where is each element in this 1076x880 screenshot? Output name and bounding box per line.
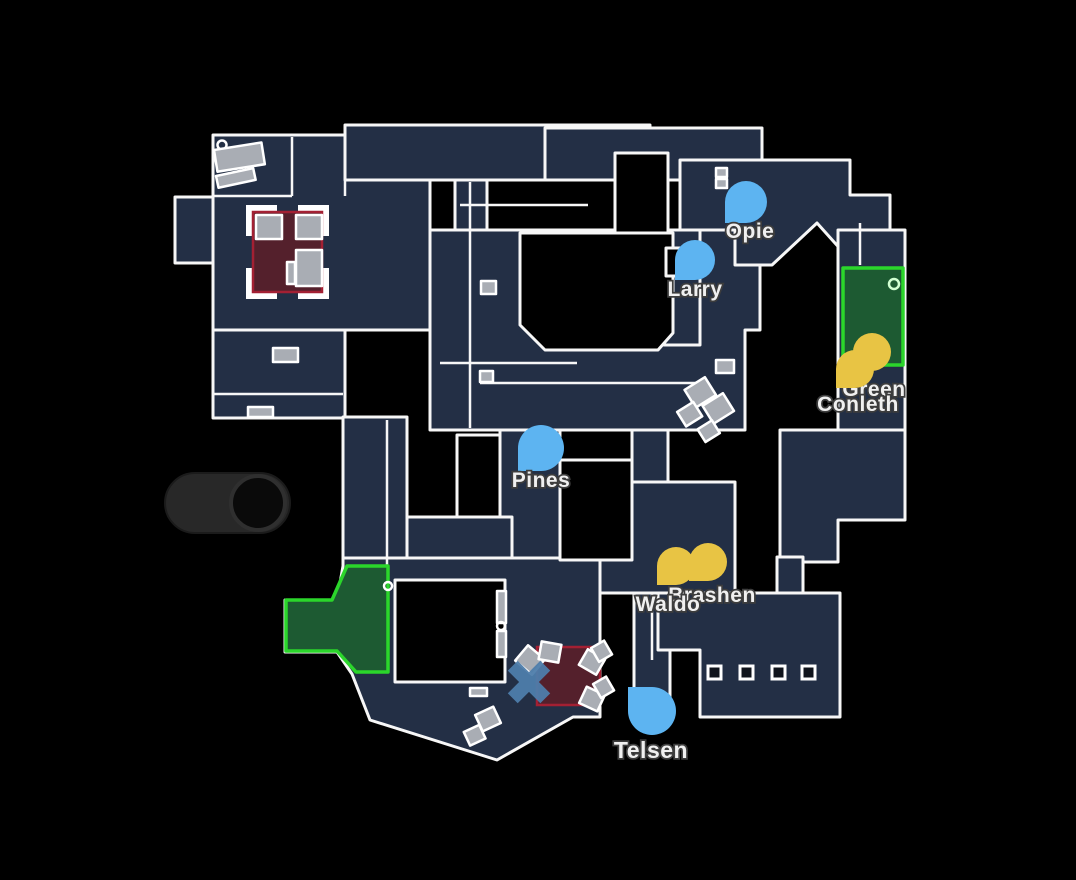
player-drop-icon [725, 181, 767, 223]
player-name-label: Larry [667, 278, 722, 301]
crate [470, 688, 487, 696]
minimap-svg: Green Conleth Brashen Waldo Opie Larry P… [0, 0, 1076, 880]
courtyard-market [560, 460, 632, 560]
player-name-label: Waldo [636, 593, 701, 616]
pillar [708, 666, 721, 679]
player-name-label: Conleth [817, 393, 899, 416]
player-drop-icon [657, 547, 695, 585]
player-marker-telsen: Telsen [614, 687, 688, 763]
crate [273, 348, 298, 362]
minimap-stage: Green Conleth Brashen Waldo Opie Larry P… [0, 0, 1076, 880]
toggle-knob[interactable] [231, 476, 285, 530]
region-a-lobby-bump [175, 197, 213, 263]
player-name-label: Telsen [614, 737, 688, 763]
site-red-a [249, 208, 326, 296]
pillar [772, 666, 785, 679]
crate [716, 168, 727, 177]
player-drop-icon [689, 543, 727, 581]
region-right-connector [777, 557, 803, 595]
courtyard-mid [520, 233, 673, 350]
region-mid-waldo-connector [632, 430, 668, 482]
crate [716, 179, 727, 188]
courtyard-below-catwalk [457, 435, 500, 517]
courtyard-spawn-room [395, 580, 505, 682]
player-name-label: Opie [726, 220, 775, 243]
crate [481, 281, 496, 294]
crate [287, 262, 295, 284]
crate [256, 215, 282, 239]
pillar [740, 666, 753, 679]
crate [296, 215, 322, 239]
region-right-steps [780, 430, 905, 562]
crate [248, 407, 273, 417]
crate [497, 591, 506, 623]
crate [497, 631, 506, 657]
courtyard-mid-north-notch [615, 153, 668, 233]
crate [480, 371, 493, 382]
player-drop-icon [628, 687, 676, 735]
toggle-switch[interactable] [165, 473, 290, 533]
player-drop-icon [518, 425, 564, 471]
crate [296, 250, 322, 286]
player-drop-icon [836, 350, 874, 388]
region-a-south [213, 330, 345, 418]
crate [716, 360, 734, 373]
site-green-left [286, 566, 388, 672]
pillar [802, 666, 815, 679]
region-below-catwalk [407, 517, 512, 562]
crate-rotated [539, 641, 562, 662]
player-name-label: Pines [512, 469, 571, 492]
player-drop-icon [675, 240, 715, 280]
